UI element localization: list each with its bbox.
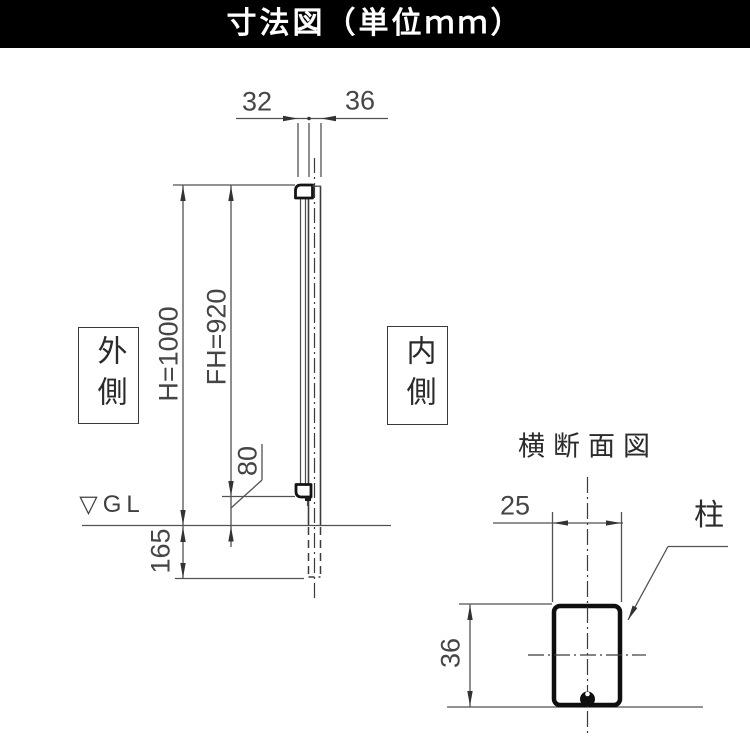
ground-and-embed-dimension (82, 526, 391, 579)
post-side-view (296, 158, 322, 600)
inside-label-box: 内側 (387, 326, 448, 425)
top-width-dimension (236, 119, 388, 178)
arrow-down-icon (228, 481, 233, 496)
arrow-left-icon (321, 116, 336, 122)
arrow-up-icon (180, 186, 185, 201)
dim-label-80: 80 (235, 446, 262, 476)
arrow-up-icon (228, 527, 233, 542)
section-screw-hole (585, 692, 590, 697)
arrow-down-icon (467, 691, 472, 706)
post-bottom-bracket (296, 485, 311, 498)
dim-label-165: 165 (148, 528, 175, 573)
outside-label: 外側 (94, 335, 124, 417)
ground-level-label: ▽GL (79, 493, 144, 517)
arrow-down-icon (180, 563, 185, 578)
cross-section-post (528, 477, 646, 733)
leader-80-diagonal (231, 480, 262, 508)
dim-label-h1000: H=1000 (156, 306, 183, 401)
arrow-up-icon (180, 527, 185, 542)
bracket-step (305, 497, 311, 501)
arrow-right-icon (283, 116, 298, 122)
arrow-up-icon (467, 605, 472, 620)
height-dimensions (173, 185, 295, 547)
arrow-left-icon (553, 520, 568, 525)
arrow-leader-icon (628, 606, 637, 621)
dim-label-25: 25 (500, 493, 530, 520)
dim-label-fh920: FH=920 (204, 289, 231, 386)
inside-label: 内側 (403, 335, 433, 417)
arrow-down-icon (180, 510, 185, 525)
arrow-right-icon (606, 520, 621, 525)
dim-label-36-section: 36 (438, 638, 465, 668)
dimension-drawing-page: 寸法図（単位ｍｍ） (0, 0, 750, 750)
dim-label-32: 32 (242, 89, 272, 116)
top-width-arrows (283, 116, 336, 122)
post-top-cap (296, 185, 313, 198)
dim-label-36: 36 (345, 88, 375, 115)
outside-label-box: 外側 (78, 327, 139, 424)
post-label: 柱 (694, 501, 724, 531)
arrow-up-icon (228, 186, 233, 201)
dim-dot (307, 117, 311, 121)
cross-section-title: 横断面図 (518, 434, 658, 461)
